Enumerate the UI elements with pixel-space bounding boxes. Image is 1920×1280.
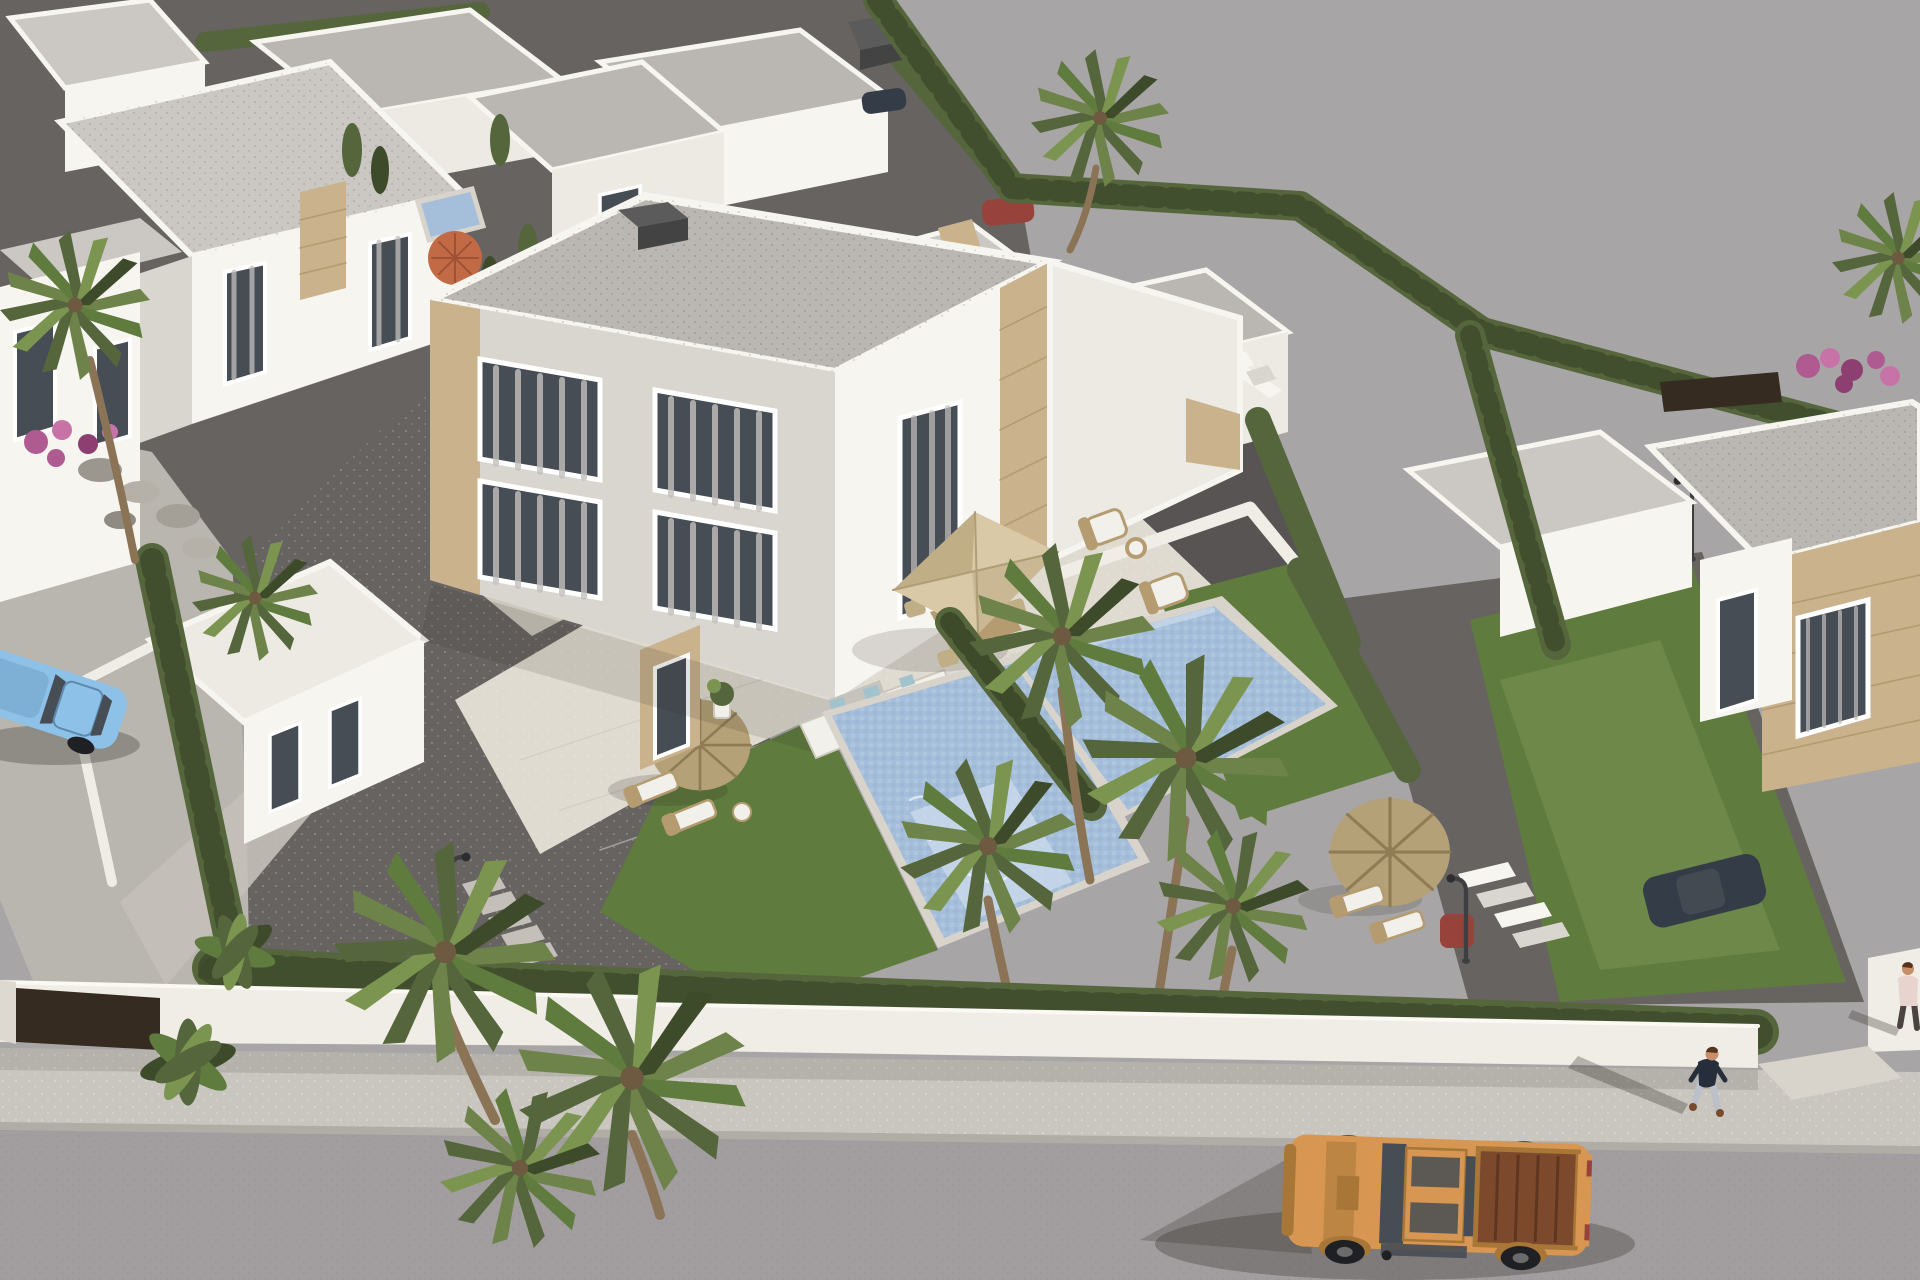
scene-canvas xyxy=(0,0,1920,1280)
torso xyxy=(1898,975,1918,1006)
side-table-top xyxy=(1129,541,1143,555)
roof-glass xyxy=(1409,1202,1458,1234)
window-upper-left xyxy=(480,359,600,480)
facade-stone-corner xyxy=(430,300,480,595)
shoe xyxy=(1689,1103,1697,1111)
gate-pillar xyxy=(0,980,16,1044)
roof-glass xyxy=(1411,1156,1460,1188)
shoe xyxy=(1716,1109,1724,1117)
window-lower-left xyxy=(480,481,600,598)
tail-light xyxy=(1584,1224,1590,1240)
window-upper-right xyxy=(655,390,775,511)
tail-light xyxy=(1587,1160,1593,1176)
hood-scoop xyxy=(1336,1176,1359,1211)
driveway-gate xyxy=(16,988,160,1050)
window-lower-right xyxy=(655,512,775,629)
villa-b4-stone xyxy=(300,181,346,300)
truck-bed xyxy=(1475,1149,1578,1248)
architectural-render xyxy=(0,0,1920,1280)
porch-door xyxy=(1718,590,1756,712)
red-car-rear xyxy=(1440,914,1474,948)
